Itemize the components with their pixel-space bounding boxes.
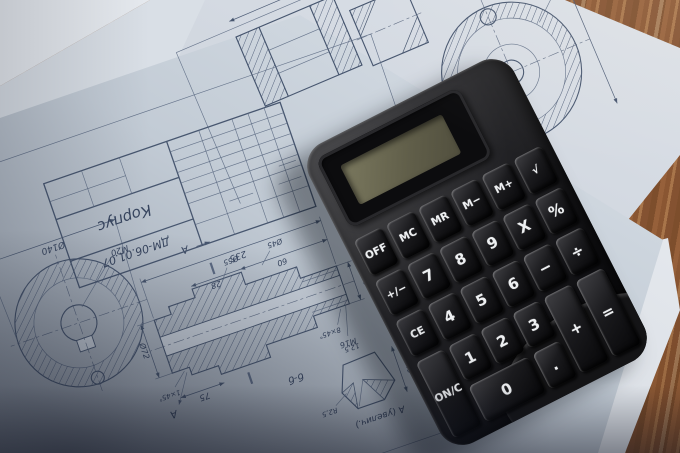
photo-scene: 235 60 28 75 8×45° M16 Ø72 Ø55 Ø45 Ø60 1… — [0, 0, 680, 453]
calculator-display — [340, 114, 462, 205]
